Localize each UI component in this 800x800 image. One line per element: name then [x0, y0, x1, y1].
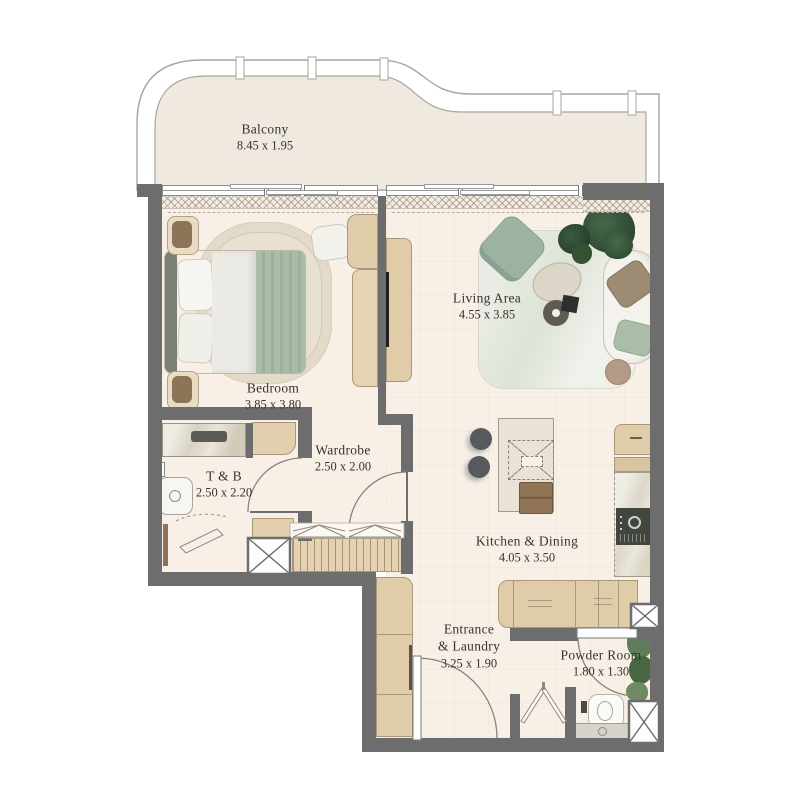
room-dims: 3.85 x 3.80 [245, 397, 301, 413]
door-arc-bathroom [248, 458, 302, 512]
service-shaft [631, 604, 659, 628]
room-name: Living Area [453, 289, 521, 306]
shower-bench [180, 529, 223, 553]
room-name: Kitchen & Dining [476, 532, 578, 549]
room-name-line2: & Laundry [438, 638, 500, 655]
wardrobe-label: Wardrobe 2.50 x 2.00 [315, 441, 371, 474]
tb-label: T & B 2.50 x 2.20 [196, 467, 252, 500]
room-name: T & B [196, 467, 252, 484]
room-dims: 2.50 x 2.00 [315, 459, 371, 475]
door-arc-wardrobe [349, 472, 407, 531]
bifold-door-leaf [521, 688, 545, 723]
room-dims: 4.05 x 3.50 [476, 550, 578, 566]
bedroom-label: Bedroom 3.85 x 3.80 [245, 379, 301, 412]
service-shaft [248, 538, 290, 574]
bench-fold-dashes [176, 514, 228, 521]
service-shaft [629, 701, 659, 743]
room-name: Wardrobe [315, 441, 371, 458]
door-leaf-powder [577, 628, 637, 638]
entrance-label: Entrance & Laundry 3.25 x 1.90 [438, 621, 500, 672]
plan-linework [0, 0, 800, 800]
room-dims: 8.45 x 1.95 [237, 138, 293, 154]
room-dims: 3.25 x 1.90 [438, 655, 500, 671]
living-label: Living Area 4.55 x 3.85 [453, 289, 521, 322]
room-name: Bedroom [245, 379, 301, 396]
bifold-door-leaf [542, 688, 566, 723]
room-name: Balcony [237, 120, 293, 137]
door-leaf-entrance [413, 656, 421, 740]
room-dims: 2.50 x 2.20 [196, 485, 252, 501]
room-name: Powder Room [561, 646, 642, 663]
kitchen-label: Kitchen & Dining 4.05 x 3.50 [476, 532, 578, 565]
bifold-door-pivot [542, 682, 545, 690]
room-name: Entrance [438, 621, 500, 638]
balcony-label: Balcony 8.45 x 1.95 [237, 120, 293, 153]
powder-label: Powder Room 1.80 x 1.30 [561, 646, 642, 679]
floor-plan: Balcony 8.45 x 1.95 Bedroom 3.85 x 3.80 … [0, 0, 800, 800]
room-dims: 4.55 x 3.85 [453, 307, 521, 323]
room-dims: 1.80 x 1.30 [561, 664, 642, 680]
